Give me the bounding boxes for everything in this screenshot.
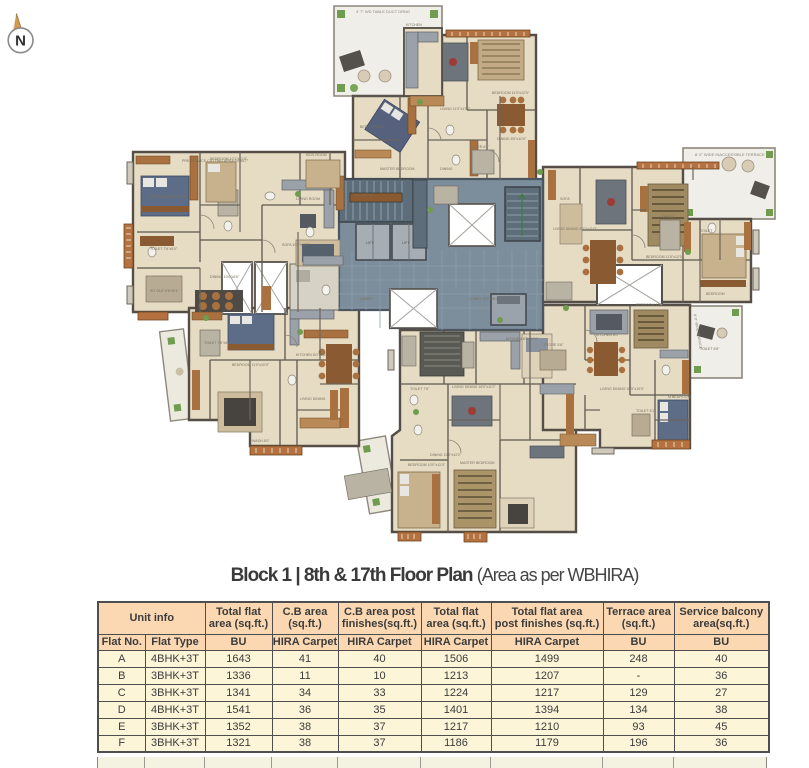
svg-text:LIFT: LIFT [402,241,410,245]
svg-text:MASTER BEDROOM: MASTER BEDROOM [380,167,415,171]
svg-text:STORE 5'6": STORE 5'6" [544,343,564,347]
svg-text:KITCHEN 8'2"x10'0": KITCHEN 8'2"x10'0" [506,337,539,341]
svg-text:LIVING DINING 16'5"x10'0": LIVING DINING 16'5"x10'0" [600,387,645,391]
svg-text:TOILET: TOILET [700,229,713,233]
svg-text:DINING: DINING [440,167,453,171]
svg-text:SOFA: SOFA [560,197,570,201]
svg-text:4' 7" WD TABLE DUCT DRNG: 4' 7" WD TABLE DUCT DRNG [356,9,410,14]
svg-text:LIFT: LIFT [366,241,374,245]
svg-text:TOILET 8'1": TOILET 8'1" [636,409,656,413]
svg-text:WASH 8'0": WASH 8'0" [252,439,270,443]
svg-text:LIVING DINING 20'1"x11'0": LIVING DINING 20'1"x11'0" [553,227,598,231]
svg-text:LIVING 11'0"x17'2": LIVING 11'0"x17'2" [440,107,471,111]
svg-text:KIDS ROOM: KIDS ROOM [306,153,327,157]
svg-text:SIT OUT 9'6"x5'1": SIT OUT 9'6"x5'1" [150,289,179,293]
svg-text:TOILET 7'6": TOILET 7'6" [410,387,430,391]
svg-text:TOILET 7'6"x5'0": TOILET 7'6"x5'0" [150,247,178,251]
svg-text:LOBBY 8'0" WIDE: LOBBY 8'0" WIDE [470,297,500,301]
svg-text:BED 11'6"x12'2": BED 11'6"x12'2" [360,125,387,129]
svg-text:LIVING DINING 16'0"x11'2": LIVING DINING 16'0"x11'2" [452,385,497,389]
svg-text:SOFA 10'2"x11'0": SOFA 10'2"x11'0" [282,243,311,247]
svg-text:M.BEDROOM: M.BEDROOM [668,395,691,399]
svg-text:DINING 8'0"x10'0": DINING 8'0"x10'0" [497,137,527,141]
svg-text:LOBBY: LOBBY [360,297,373,301]
svg-text:BEDROOM 10'1"x11'0": BEDROOM 10'1"x11'0" [210,157,248,161]
svg-text:LIVING ROOM: LIVING ROOM [296,197,320,201]
svg-text:TOILET 6'8": TOILET 6'8" [700,347,720,351]
svg-text:KITCHEN 8'0": KITCHEN 8'0" [596,333,619,337]
svg-text:BEDROOM 10'0"x11'0": BEDROOM 10'0"x11'0" [408,463,446,467]
svg-text:FOYER 6'1": FOYER 6'1" [470,145,490,149]
svg-text:DRESS: DRESS [662,215,675,219]
svg-text:BEDROOM 10'0"x11'6": BEDROOM 10'0"x11'6" [150,195,188,199]
svg-text:BEDROOM 11'0"x10'0": BEDROOM 11'0"x10'0" [232,363,270,367]
svg-text:KITCHEN 8'0"x9'6": KITCHEN 8'0"x9'6" [296,353,327,357]
svg-text:DINING 10'0"x12'2": DINING 10'0"x12'2" [430,453,462,457]
svg-text:BEDROOM 11'0"x12'0": BEDROOM 11'0"x12'0" [492,91,530,95]
svg-text:LIVING DINING: LIVING DINING [300,397,326,401]
svg-text:8' 0" WIDE INACCESSIBLE TERRAC: 8' 0" WIDE INACCESSIBLE TERRACE [695,152,765,157]
svg-text:BEDROOM 10'0": BEDROOM 10'0" [636,303,664,307]
svg-text:TOILET 7'6"x5'0": TOILET 7'6"x5'0" [204,341,232,345]
svg-text:BEDROOM: BEDROOM [706,292,725,296]
svg-text:BEDROOM 11'6"x12'0": BEDROOM 11'6"x12'0" [646,255,684,259]
svg-text:KITCHEN: KITCHEN [406,23,422,27]
svg-text:DINING 10'0"x8'6": DINING 10'0"x8'6" [210,275,240,279]
svg-text:A/C LEDGE: A/C LEDGE [354,193,374,197]
svg-text:MASTER BEDROOM: MASTER BEDROOM [460,461,495,465]
